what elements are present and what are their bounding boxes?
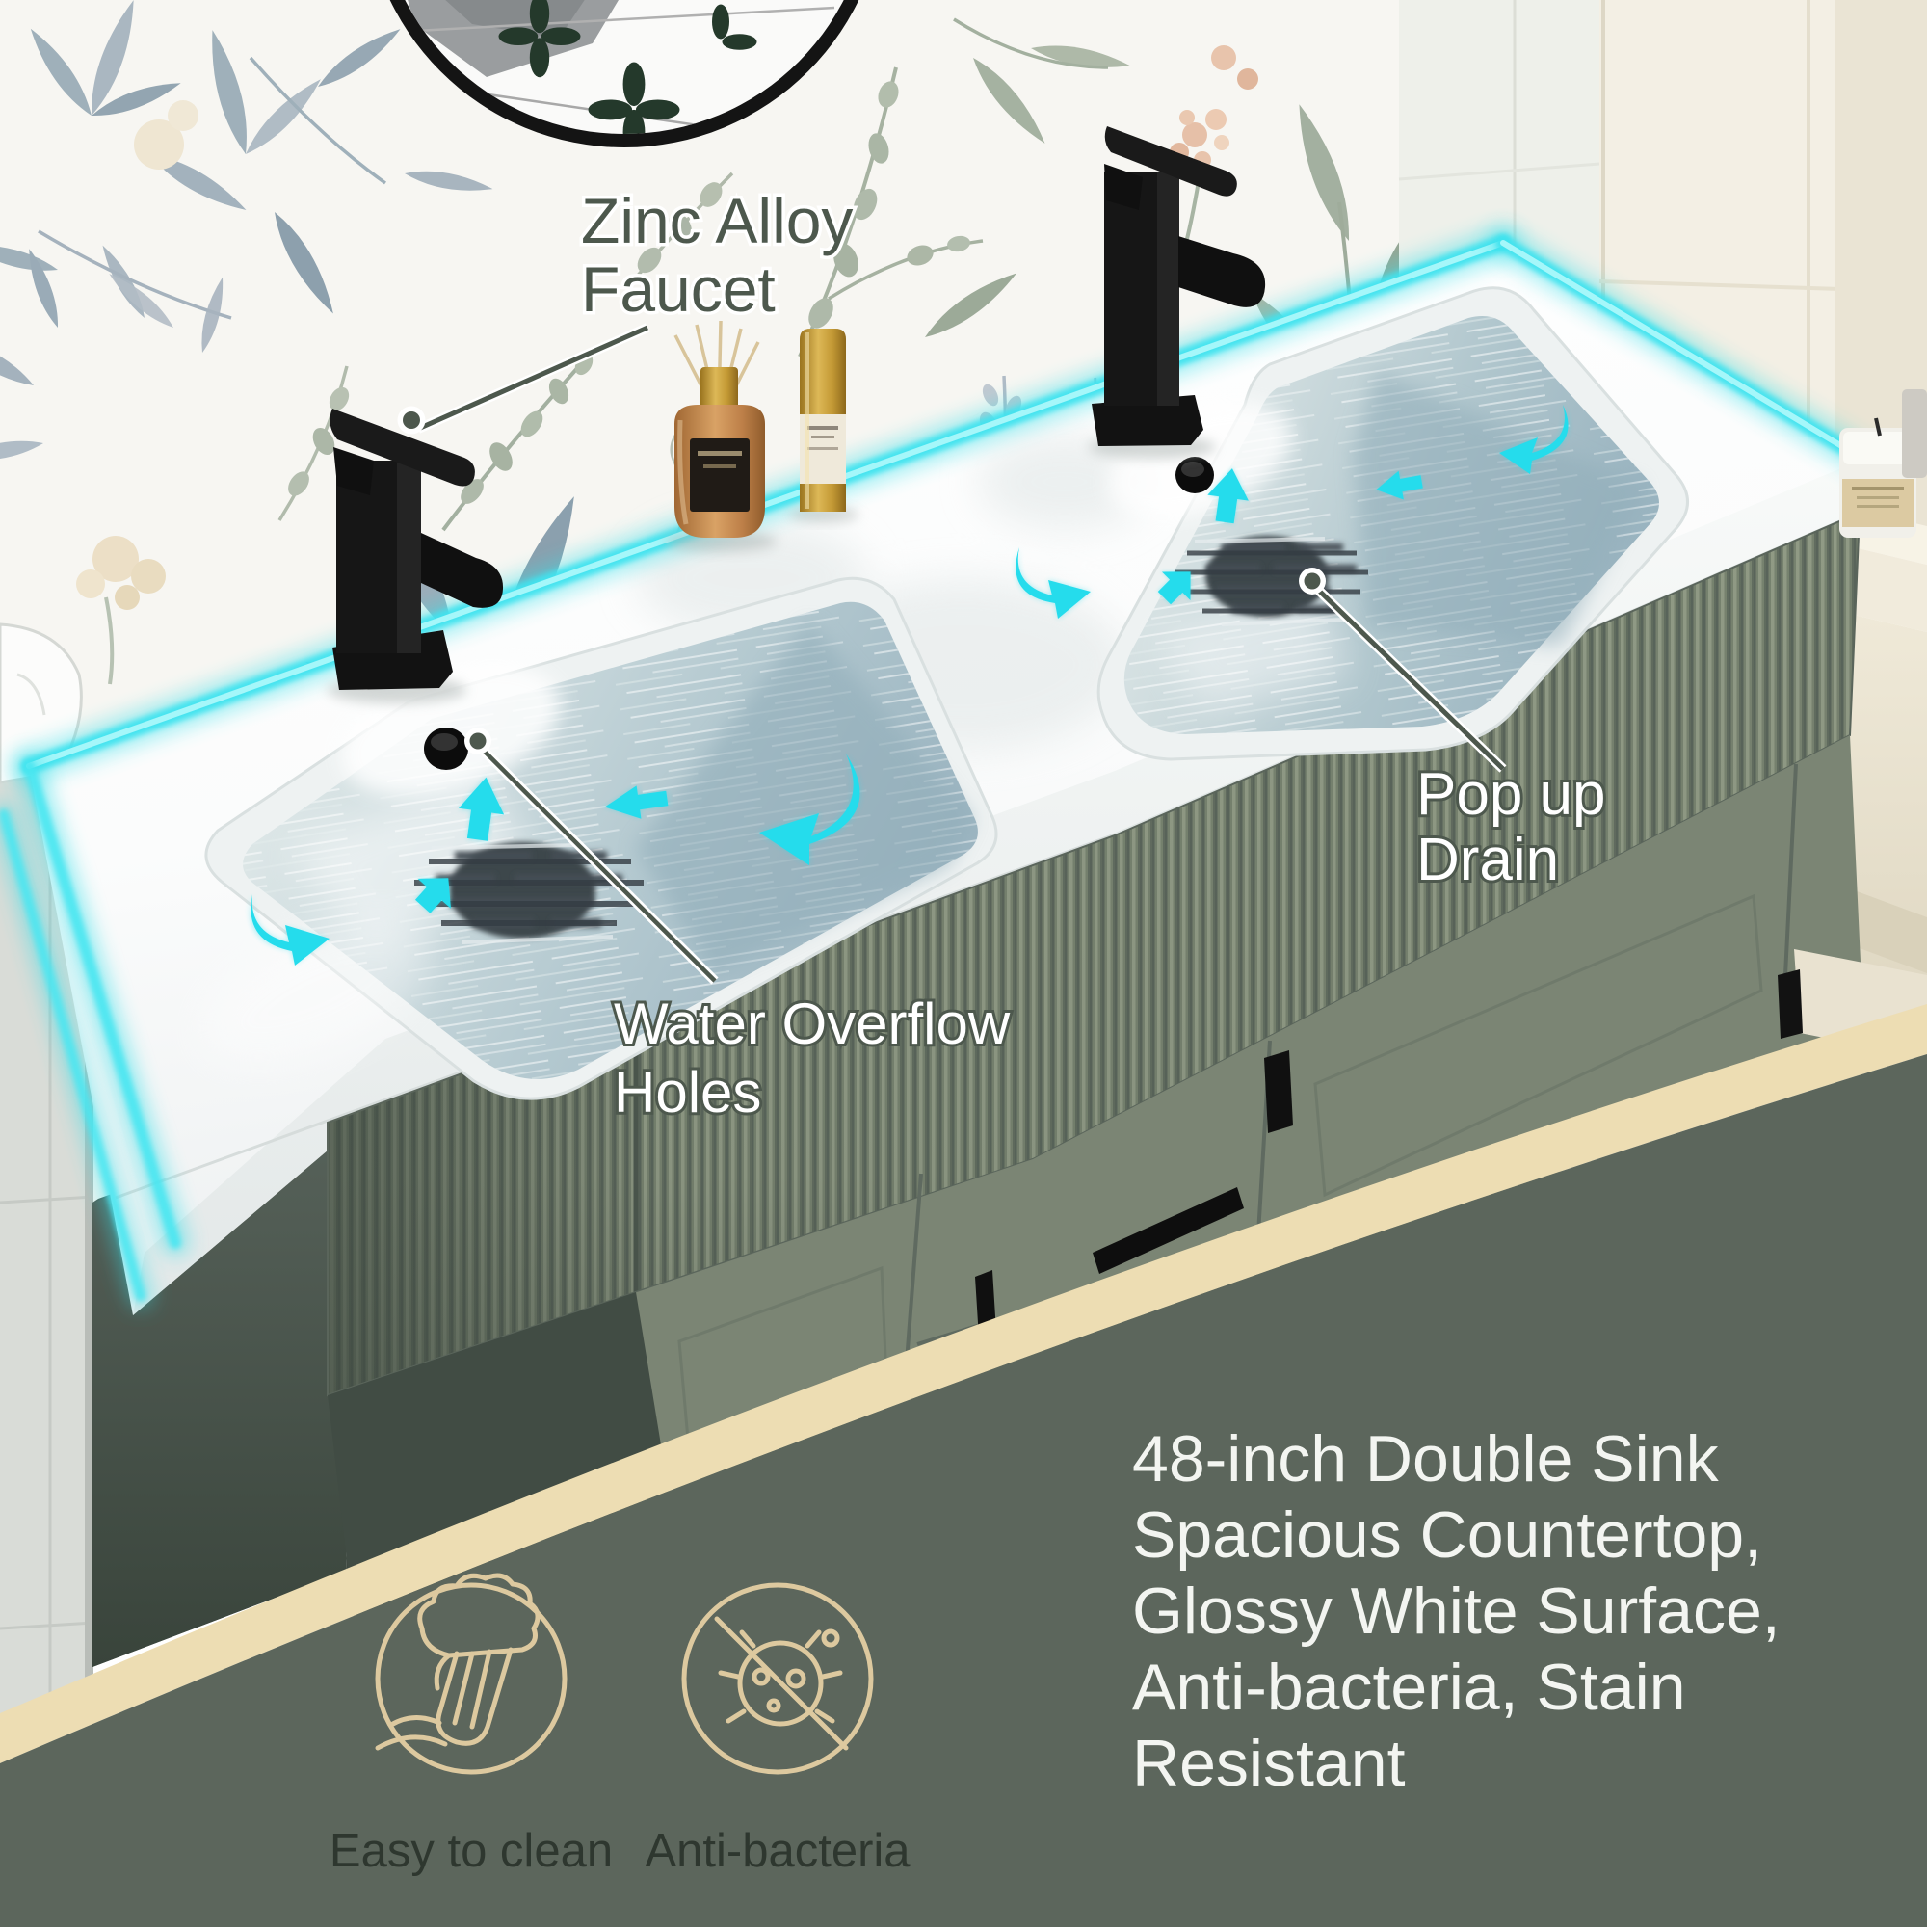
- svg-text:Holes: Holes: [614, 1060, 761, 1125]
- svg-text:Drain: Drain: [1416, 827, 1559, 893]
- svg-text:Faucet: Faucet: [581, 253, 776, 325]
- svg-text:Glossy White Surface,: Glossy White Surface,: [1132, 1575, 1781, 1648]
- svg-text:Zinc Alloy: Zinc Alloy: [581, 185, 853, 256]
- svg-text:Anti-bacteria: Anti-bacteria: [645, 1825, 911, 1877]
- svg-text:Pop up: Pop up: [1416, 761, 1606, 828]
- svg-text:48-inch Double Sink: 48-inch Double Sink: [1132, 1422, 1720, 1495]
- svg-text:Resistant: Resistant: [1132, 1727, 1406, 1800]
- svg-text:Anti-bacteria, Stain: Anti-bacteria, Stain: [1132, 1651, 1686, 1724]
- svg-text:Spacious Countertop,: Spacious Countertop,: [1132, 1498, 1762, 1572]
- svg-text:Easy to clean: Easy to clean: [330, 1825, 613, 1877]
- svg-text:Water Overflow: Water Overflow: [614, 992, 1011, 1056]
